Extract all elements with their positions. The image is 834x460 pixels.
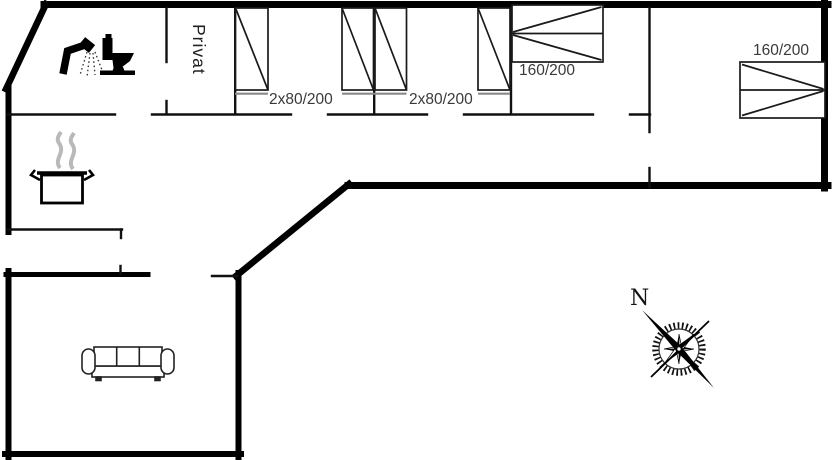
floor-plan: Privat 2x80/200 2x80/200 160/200 160/200… (0, 0, 834, 460)
bed-double-c (512, 5, 603, 62)
bed-size-label-d: 160/200 (753, 42, 809, 60)
sofa-icon (82, 347, 174, 381)
bed-size-label-c: 160/200 (519, 62, 575, 80)
steam-wisps (58, 132, 74, 169)
floor-plan-drawing (0, 0, 834, 460)
compass-rose-icon (642, 310, 714, 388)
shower-icon (63, 41, 102, 77)
exterior-walls (5, 2, 828, 457)
bed-double-d (740, 62, 825, 118)
bed-single-b1 (375, 8, 407, 90)
bed-single-a2 (342, 8, 374, 90)
bed-single-b2 (478, 8, 510, 90)
room-label-privat: Privat (188, 24, 209, 75)
bed-size-label-b: 2x80/200 (409, 91, 473, 109)
cooking-pot-icon (31, 132, 93, 203)
bed-size-label-a: 2x80/200 (269, 91, 333, 109)
toilet-icon (100, 34, 135, 75)
compass-north-label: N (630, 286, 649, 311)
bed-single-a1 (236, 8, 269, 90)
